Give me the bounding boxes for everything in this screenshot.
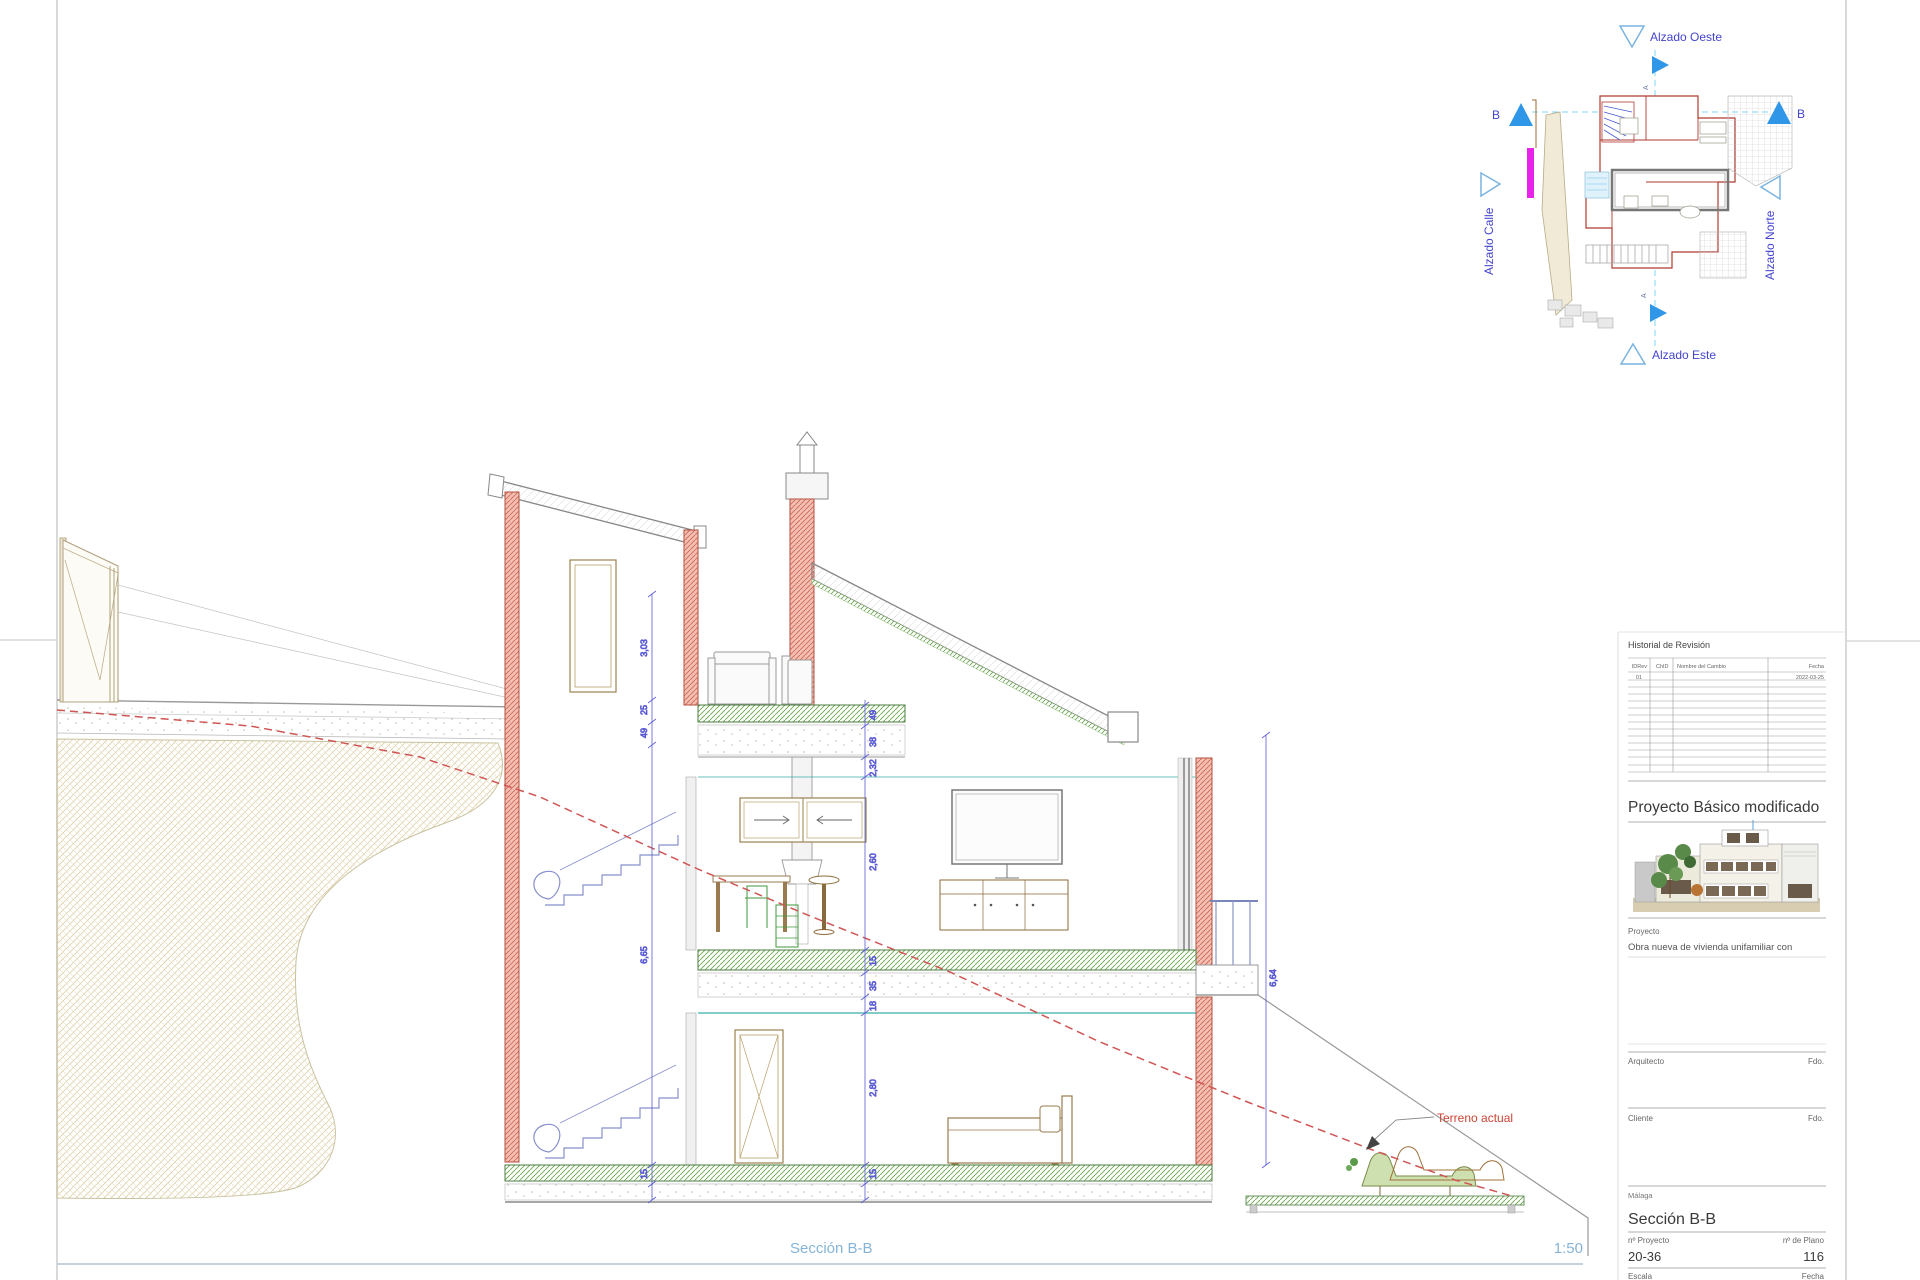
wall-tower-right	[684, 530, 698, 705]
dim-label: 49	[868, 710, 878, 720]
project-title: Proyecto Básico modificado	[1628, 799, 1819, 816]
architect-sign-label: Fdo.	[1808, 1057, 1824, 1066]
architect-label: Arquitecto	[1628, 1057, 1665, 1066]
drawing-name: Sección B-B	[1628, 1211, 1716, 1228]
terreno-actual-label: Terreno actual	[1437, 1111, 1513, 1125]
dim-label: 18	[868, 1001, 878, 1011]
key-plan: B B Alzado Oeste A A Alzado Este Alzado …	[1481, 26, 1805, 364]
elevation-marker-este-icon	[1621, 344, 1645, 364]
wall-left	[505, 492, 519, 1162]
drawing-title-label: Sección B-B	[790, 1240, 873, 1257]
pavement-band	[57, 707, 520, 737]
dim-label: 2,60	[868, 853, 878, 871]
plan-no-label: nº de Plano	[1783, 1236, 1825, 1245]
round-table	[809, 876, 839, 935]
terrain-left	[57, 700, 520, 1199]
client-sign-label: Fdo.	[1808, 1114, 1824, 1123]
a-marker-top: A	[1643, 85, 1650, 90]
dim-chain-right: 6,64	[1262, 732, 1278, 1168]
section-marker-b-left-label: B	[1492, 108, 1500, 122]
dim-label: 25	[639, 705, 649, 715]
tv-unit	[940, 790, 1068, 930]
dim-label: 2,32	[868, 759, 878, 777]
project-thumbnail	[1633, 820, 1820, 912]
terreno-actual-callout: Terreno actual	[1366, 1111, 1513, 1150]
tower-roof	[488, 474, 706, 548]
sheet-footer: Sección B-B 1:50	[57, 1240, 1583, 1264]
revision-col-fecha: Fecha	[1809, 664, 1825, 670]
location-label: Málaga	[1628, 1191, 1653, 1200]
window-row	[740, 798, 866, 842]
section-marker-b-right-label: B	[1797, 107, 1805, 121]
drawing-scale-label: 1:50	[1554, 1240, 1583, 1257]
mid-slab	[698, 950, 1196, 1013]
section-drawing: Terreno actual 3,03 25 49 6,65 15 49 38 …	[57, 432, 1588, 1256]
elevation-label-calle: Alzado Calle	[1482, 207, 1496, 275]
plan-stones	[1548, 300, 1613, 328]
project-no-value: 20-36	[1628, 1249, 1661, 1264]
plan-connector	[1532, 100, 1536, 148]
title-block: Historial de Revisión IDRev ChID Nombre …	[1628, 640, 1826, 1280]
dim-label: 15	[868, 1169, 878, 1179]
revision-row1-fecha: 2022-03-25	[1796, 675, 1824, 681]
camera-marker-top-icon	[1652, 56, 1669, 74]
revision-title: Historial de Revisión	[1628, 640, 1710, 650]
section-marker-b-left-icon	[1509, 103, 1533, 126]
elevation-label-oeste: Alzado Oeste	[1650, 30, 1722, 44]
glass-door-right	[1178, 758, 1192, 950]
balcony-rail-posts	[1216, 901, 1250, 965]
revision-row1-id: 01	[1636, 675, 1642, 681]
sheet-svg: B B Alzado Oeste A A Alzado Este Alzado …	[0, 0, 1920, 1280]
deck	[1246, 1196, 1524, 1205]
elevation-label-este: Alzado Este	[1652, 348, 1716, 362]
wall-right-upper	[1196, 758, 1212, 965]
elevation-label-norte: Alzado Norte	[1763, 210, 1777, 280]
dim-label: 35	[868, 981, 878, 991]
plan-pool	[1585, 172, 1609, 198]
dim-label: 15	[868, 956, 878, 966]
date-label: Fecha	[1802, 1272, 1825, 1280]
revision-col-idrev: IDRev	[1632, 664, 1648, 670]
tower-window	[570, 560, 616, 692]
elevation-marker-oeste-icon	[1620, 26, 1644, 47]
dim-label: 6,64	[1268, 969, 1278, 987]
dim-label: 49	[639, 728, 649, 738]
sun-loungers	[1346, 1147, 1504, 1196]
dim-label: 38	[868, 737, 878, 747]
camera-marker-bottom-icon	[1650, 304, 1667, 322]
plan-grid-patio	[1700, 232, 1746, 278]
earth-mass	[57, 739, 502, 1199]
project-no-label: nº Proyecto	[1628, 1236, 1670, 1245]
plan-no-value: 116	[1803, 1249, 1824, 1264]
roof-fascia	[1108, 712, 1138, 742]
slope-guides	[118, 585, 518, 700]
client-label: Cliente	[1628, 1114, 1653, 1123]
street-fence	[60, 538, 518, 702]
scale-label: Escala	[1628, 1272, 1653, 1280]
dim-label: 15	[639, 1169, 649, 1179]
wall-right-lower	[1196, 997, 1212, 1165]
bed	[948, 1096, 1072, 1168]
project-description: Obra nueva de vivienda unifamiliar con	[1628, 942, 1792, 953]
plan-retaining-wall	[1542, 112, 1572, 315]
dim-chain-left: 3,03 25 49 6,65 15	[639, 591, 656, 1203]
stairs	[534, 812, 678, 1158]
plan-highlight-wall	[1527, 148, 1534, 198]
elevation-marker-calle-icon	[1481, 173, 1500, 196]
terrain-right	[1246, 995, 1588, 1256]
revision-col-nombre: Nombre del Cambio	[1677, 664, 1726, 670]
dim-label: 3,03	[639, 639, 649, 657]
desk-and-chair	[713, 876, 798, 947]
bottom-slab	[505, 1165, 1212, 1202]
terrace-sofas	[708, 652, 812, 704]
revision-col-chid: ChID	[1656, 664, 1669, 670]
dim-label: 6,65	[639, 946, 649, 964]
dim-label: 2,80	[868, 1079, 878, 1097]
interior-walls	[686, 777, 696, 1165]
lower-door	[735, 1030, 783, 1163]
a-marker-bottom: A	[1641, 293, 1648, 298]
project-label: Proyecto	[1628, 927, 1660, 936]
revision-table: IDRev ChID Nombre del Cambio Fecha 01 20…	[1628, 658, 1826, 772]
